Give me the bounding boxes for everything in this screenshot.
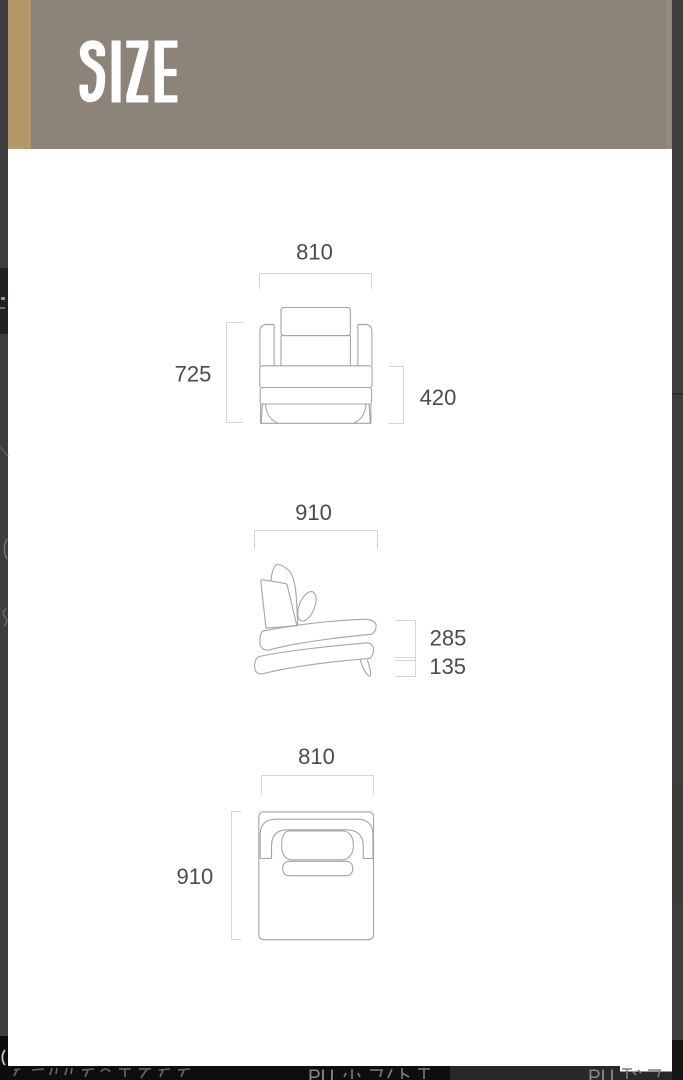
svg-text:810: 810	[298, 744, 335, 769]
svg-text:420: 420	[420, 385, 457, 410]
svg-text:135: 135	[429, 654, 466, 679]
svg-text:PU: PU	[588, 1067, 614, 1080]
svg-text:PU: PU	[308, 1067, 334, 1080]
svg-text:810: 810	[296, 240, 333, 265]
svg-text:910: 910	[295, 500, 332, 525]
svg-text:285: 285	[430, 626, 467, 651]
svg-text:910: 910	[177, 864, 214, 889]
svg-text:725: 725	[175, 362, 212, 387]
